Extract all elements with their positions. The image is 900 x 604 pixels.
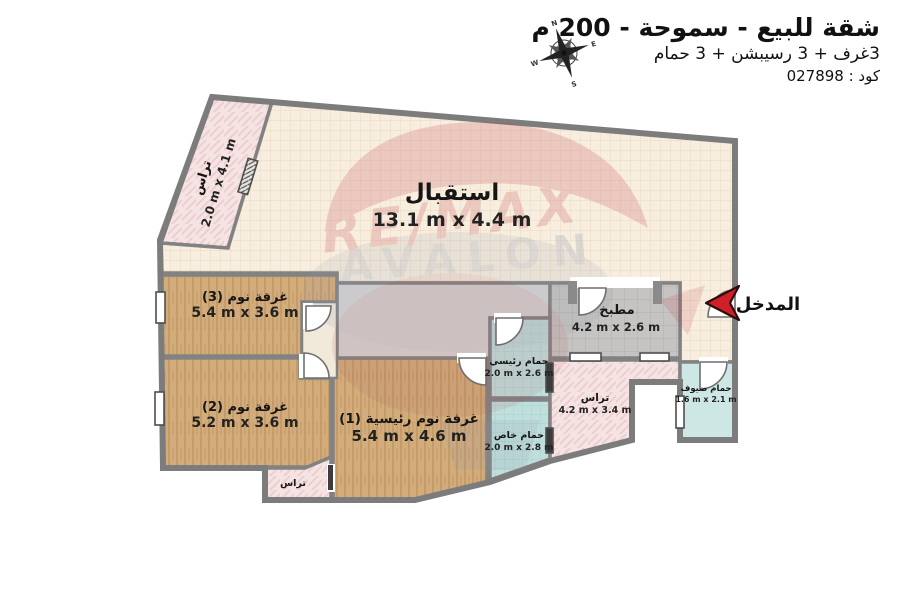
bedroom3-window (156, 292, 165, 323)
kitchen-window-2 (640, 353, 669, 361)
floorplan-canvas: RE/MAX AVALON (0, 0, 900, 600)
guest-bathroom-dims: 1.6 m x 2.1 m (675, 395, 736, 404)
reception-dims: 13.1 m x 4.4 m (373, 209, 532, 231)
master-bedroom-label: غرفة نوم رئيسية (1) (339, 411, 479, 427)
terrace-small-door (328, 465, 333, 490)
guest-bathroom-label: حمام ضيوف (680, 384, 731, 394)
kitchen-label: مطبخ (599, 303, 634, 318)
listing-code: كود : 027898 (360, 67, 880, 85)
balloon-lower (332, 273, 568, 417)
floorplan-page: شقة للبيع - سموحة - 200 م 3غرف + 3 رسيبش… (0, 0, 900, 600)
terrace-right-dims: 4.2 m x 3.4 m (559, 405, 632, 416)
bedroom3-dims: 5.4 m x 3.6 m (191, 305, 298, 321)
master-bedroom-dims: 5.4 m x 4.6 m (352, 427, 467, 445)
private-bathroom-dims: 2.0 m x 2.8 m (485, 443, 554, 453)
bedroom2-label: غرفة نوم (2) (202, 400, 288, 415)
private-bathroom-label: حمام خاص (494, 430, 544, 441)
entrance-label: المدخل (736, 294, 800, 315)
main-bathroom-dims: 2.0 m x 2.6 m (485, 369, 554, 379)
reception-label: استقبال (405, 180, 499, 206)
kitchen-dims: 4.2 m x 2.6 m (572, 320, 660, 334)
terrace-right-label: تراس (581, 392, 610, 404)
bedroom2-dims: 5.2 m x 3.6 m (191, 415, 298, 431)
listing-summary: 3غرف + 3 رسيبشن + 3 حمام (360, 44, 880, 64)
page-title: شقة للبيع - سموحة - 200 م (360, 14, 880, 42)
bedroom3-label: غرفة نوم (3) (202, 290, 288, 305)
listing-header: شقة للبيع - سموحة - 200 م 3غرف + 3 رسيبش… (360, 14, 880, 85)
main-bathroom-label: حمام رئيسي (489, 356, 548, 367)
kitchen-window-1 (570, 353, 601, 361)
bedroom2-window (155, 392, 164, 425)
terrace-small-label: تراس (280, 478, 306, 489)
